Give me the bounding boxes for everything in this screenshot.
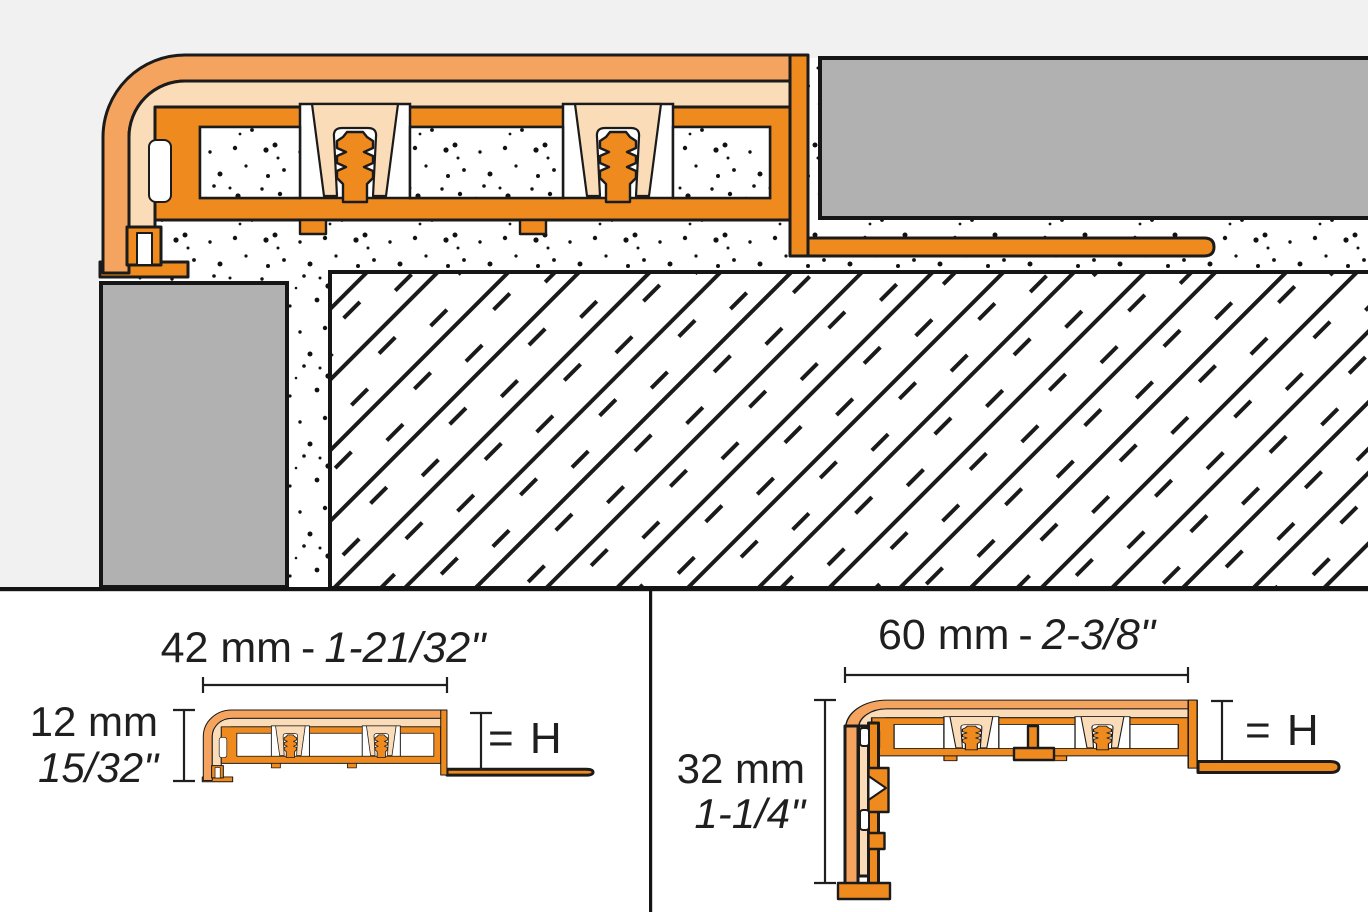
substrate-hatch	[330, 272, 1368, 588]
mortar-in-chambers	[200, 127, 770, 198]
section-divider	[0, 587, 1368, 591]
profile-installation-diagram: 42 mm-1-21/32" 12 mm 15/32" = H 60 mm-2-…	[0, 0, 1368, 912]
tile-right	[820, 58, 1368, 218]
right-height-equals-label: = H	[1245, 709, 1321, 753]
detail-panel-right	[814, 667, 1339, 899]
right-height-imperial-label: 1-1/4"	[640, 793, 805, 835]
left-width-dimension-label: 42 mm-1-21/32"	[103, 627, 543, 670]
left-width-imperial: 1-21/32"	[324, 624, 485, 672]
tile-left	[101, 283, 287, 587]
left-height-equals-label: = H	[488, 717, 564, 761]
right-width-dimension-label: 60 mm-2-3/8"	[800, 614, 1233, 657]
profile-anchor-leg	[447, 769, 593, 775]
right-width-metric: 60 mm	[878, 611, 1009, 659]
left-width-metric: 42 mm	[161, 624, 292, 672]
profile-cross-section-small	[202, 710, 447, 782]
left-height-imperial-label: 15/32"	[0, 747, 158, 789]
profile-anchor-leg	[1198, 762, 1339, 773]
right-height-metric-label: 32 mm	[640, 748, 805, 790]
profile-cross-section-tall	[844, 700, 1197, 775]
profile-anchor-leg	[808, 238, 1214, 256]
left-height-metric-label: 12 mm	[0, 701, 158, 743]
installed-cross-section-view	[0, 0, 1368, 589]
left-width-separator: -	[301, 624, 315, 672]
right-width-separator: -	[1018, 611, 1032, 659]
right-width-imperial: 2-3/8"	[1042, 611, 1155, 659]
